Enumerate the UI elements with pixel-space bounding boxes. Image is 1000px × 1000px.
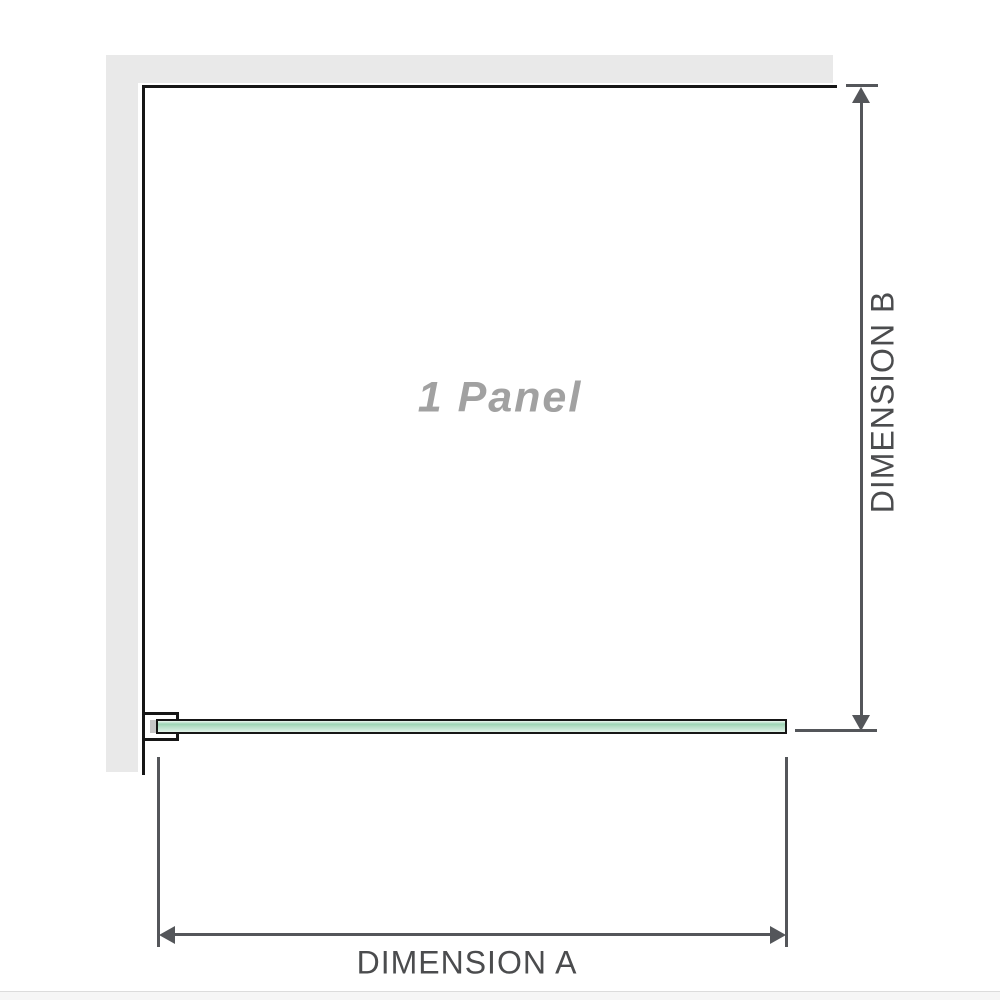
- dimension-a-line: [172, 933, 774, 936]
- dimension-b-line: [860, 101, 863, 717]
- arrow-up-icon: [852, 87, 870, 103]
- dimension-a-label: DIMENSION A: [357, 945, 578, 982]
- enclosure-top-border: [142, 85, 837, 88]
- bottom-edge-strip: [0, 991, 1000, 1000]
- panel-count-label: 1 Panel: [418, 374, 583, 423]
- dimension-b-label: DIMENSION B: [865, 291, 902, 514]
- arrow-left-icon: [159, 926, 175, 944]
- dimension-a-tick-right: [785, 757, 788, 947]
- wall-left-bar: [106, 55, 138, 772]
- wall-top-bar: [106, 55, 833, 83]
- panel-dimension-diagram: 1 Panel DIMENSION B DIMENSION A: [0, 0, 1000, 1000]
- arrow-right-icon: [770, 926, 786, 944]
- enclosure-left-border: [142, 85, 145, 775]
- dimension-a-tick-left: [157, 757, 160, 947]
- arrow-down-icon: [852, 715, 870, 731]
- glass-panel: [156, 719, 787, 734]
